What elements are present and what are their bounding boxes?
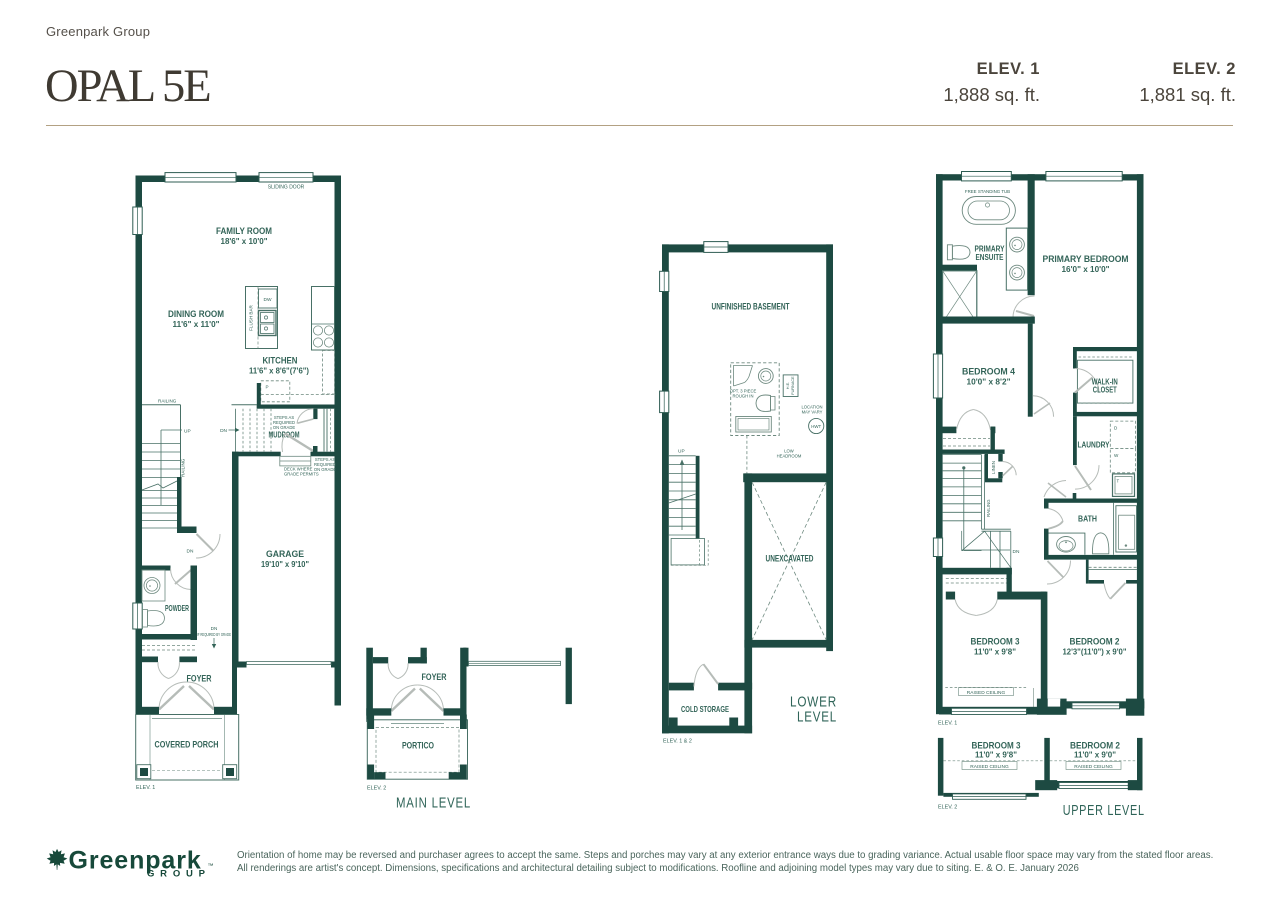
svg-text:BEDROOM 2: BEDROOM 2 bbox=[1070, 741, 1120, 751]
svg-text:ON GRADE: ON GRADE bbox=[314, 467, 337, 472]
svg-text:BEDROOM 2: BEDROOM 2 bbox=[1070, 637, 1120, 647]
svg-text:ELEV. 1 & 2: ELEV. 1 & 2 bbox=[663, 739, 692, 745]
svg-text:RAISED CEILING: RAISED CEILING bbox=[970, 764, 1009, 770]
svg-text:GRADE PERMITS: GRADE PERMITS bbox=[284, 472, 319, 477]
svg-text:MAY VARY: MAY VARY bbox=[802, 410, 823, 415]
svg-text:16'0" x 10'0": 16'0" x 10'0" bbox=[1062, 265, 1110, 274]
svg-text:11'0" x 9'8": 11'0" x 9'8" bbox=[975, 751, 1017, 760]
svg-text:LEVEL: LEVEL bbox=[797, 710, 837, 726]
svg-text:FOYER: FOYER bbox=[422, 672, 448, 682]
svg-text:RAISED CEILING: RAISED CEILING bbox=[967, 690, 1006, 696]
svg-text:ROUGH IN: ROUGH IN bbox=[733, 394, 754, 399]
svg-text:™: ™ bbox=[208, 863, 214, 870]
svg-text:COVERED PORCH: COVERED PORCH bbox=[155, 740, 219, 750]
svg-text:BEDROOM 3: BEDROOM 3 bbox=[971, 637, 1020, 647]
svg-text:COLD STORAGE: COLD STORAGE bbox=[681, 704, 729, 714]
svg-text:18'6" x 10'0": 18'6" x 10'0" bbox=[221, 237, 268, 246]
svg-text:IF REQUIRED BY GRADE: IF REQUIRED BY GRADE bbox=[197, 632, 231, 637]
svg-text:LAUNDRY: LAUNDRY bbox=[1078, 440, 1110, 450]
svg-text:HWT: HWT bbox=[811, 424, 821, 429]
svg-text:UP: UP bbox=[184, 429, 191, 435]
svg-text:RAILING: RAILING bbox=[158, 399, 177, 404]
svg-text:RAISED CEILING: RAISED CEILING bbox=[1074, 764, 1113, 770]
svg-text:FLUSH BAR: FLUSH BAR bbox=[249, 304, 254, 330]
svg-text:PORTICO: PORTICO bbox=[402, 741, 434, 751]
svg-text:LINEN: LINEN bbox=[991, 461, 996, 474]
svg-text:11'0" x 9'0": 11'0" x 9'0" bbox=[1074, 751, 1116, 760]
svg-text:GARAGE: GARAGE bbox=[266, 549, 304, 559]
svg-text:BEDROOM 4: BEDROOM 4 bbox=[962, 367, 1016, 377]
svg-text:BEDROOM 3: BEDROOM 3 bbox=[972, 741, 1021, 751]
svg-text:11'0" x 9'8": 11'0" x 9'8" bbox=[974, 648, 1016, 657]
svg-text:11'6" x 8'6"(7'6"): 11'6" x 8'6"(7'6") bbox=[249, 367, 309, 376]
svg-text:H.E.: H.E. bbox=[786, 382, 790, 389]
svg-text:POWDER: POWDER bbox=[165, 603, 189, 613]
svg-text:FREE STANDING TUB: FREE STANDING TUB bbox=[965, 189, 1010, 194]
svg-text:DN: DN bbox=[211, 626, 218, 631]
svg-text:UPPER LEVEL: UPPER LEVEL bbox=[1063, 802, 1145, 819]
svg-text:11'6" x 11'0": 11'6" x 11'0" bbox=[173, 320, 220, 329]
svg-text:MAIN LEVEL: MAIN LEVEL bbox=[396, 796, 471, 812]
svg-text:HEADROOM: HEADROOM bbox=[777, 454, 802, 459]
svg-text:PRIMARY BEDROOM: PRIMARY BEDROOM bbox=[1043, 254, 1129, 264]
svg-text:Greenpark: Greenpark bbox=[69, 846, 202, 874]
svg-text:D: D bbox=[1114, 426, 1118, 431]
svg-text:FAMILY ROOM: FAMILY ROOM bbox=[216, 226, 272, 236]
svg-text:W: W bbox=[1114, 453, 1119, 458]
svg-text:ELEV. 2: ELEV. 2 bbox=[367, 786, 386, 792]
svg-text:SLIDING DOOR: SLIDING DOOR bbox=[268, 185, 305, 191]
svg-text:UP: UP bbox=[678, 449, 685, 455]
svg-text:19'10" x 9'10": 19'10" x 9'10" bbox=[261, 560, 309, 569]
svg-text:UNFINISHED BASEMENT: UNFINISHED BASEMENT bbox=[712, 302, 790, 312]
svg-text:ENSUITE: ENSUITE bbox=[976, 252, 1004, 262]
svg-text:DN: DN bbox=[220, 428, 227, 434]
svg-text:FURNACE: FURNACE bbox=[791, 376, 795, 395]
svg-text:ELEV. 1: ELEV. 1 bbox=[136, 785, 155, 791]
svg-text:BATH: BATH bbox=[1078, 514, 1097, 524]
svg-text:P: P bbox=[266, 385, 269, 390]
svg-text:DN: DN bbox=[187, 549, 194, 555]
svg-text:10'0" x 8'2": 10'0" x 8'2" bbox=[967, 378, 1011, 387]
svg-text:12'3"(11'0") x 9'0": 12'3"(11'0") x 9'0" bbox=[1063, 648, 1127, 657]
svg-text:RAILING: RAILING bbox=[986, 499, 991, 517]
svg-text:DN: DN bbox=[1013, 549, 1020, 555]
svg-text:KITCHEN: KITCHEN bbox=[263, 356, 298, 366]
svg-text:T: T bbox=[1117, 479, 1120, 484]
svg-text:RAILING: RAILING bbox=[181, 458, 186, 477]
svg-text:UNEXCAVATED: UNEXCAVATED bbox=[766, 554, 814, 564]
svg-text:ELEV. 1: ELEV. 1 bbox=[938, 721, 957, 727]
svg-text:DINING ROOM: DINING ROOM bbox=[168, 309, 224, 319]
svg-text:CLOSET: CLOSET bbox=[1093, 386, 1117, 395]
svg-text:ELEV. 2: ELEV. 2 bbox=[938, 805, 957, 811]
svg-text:LOWER: LOWER bbox=[790, 695, 837, 711]
svg-text:DW: DW bbox=[264, 297, 272, 303]
